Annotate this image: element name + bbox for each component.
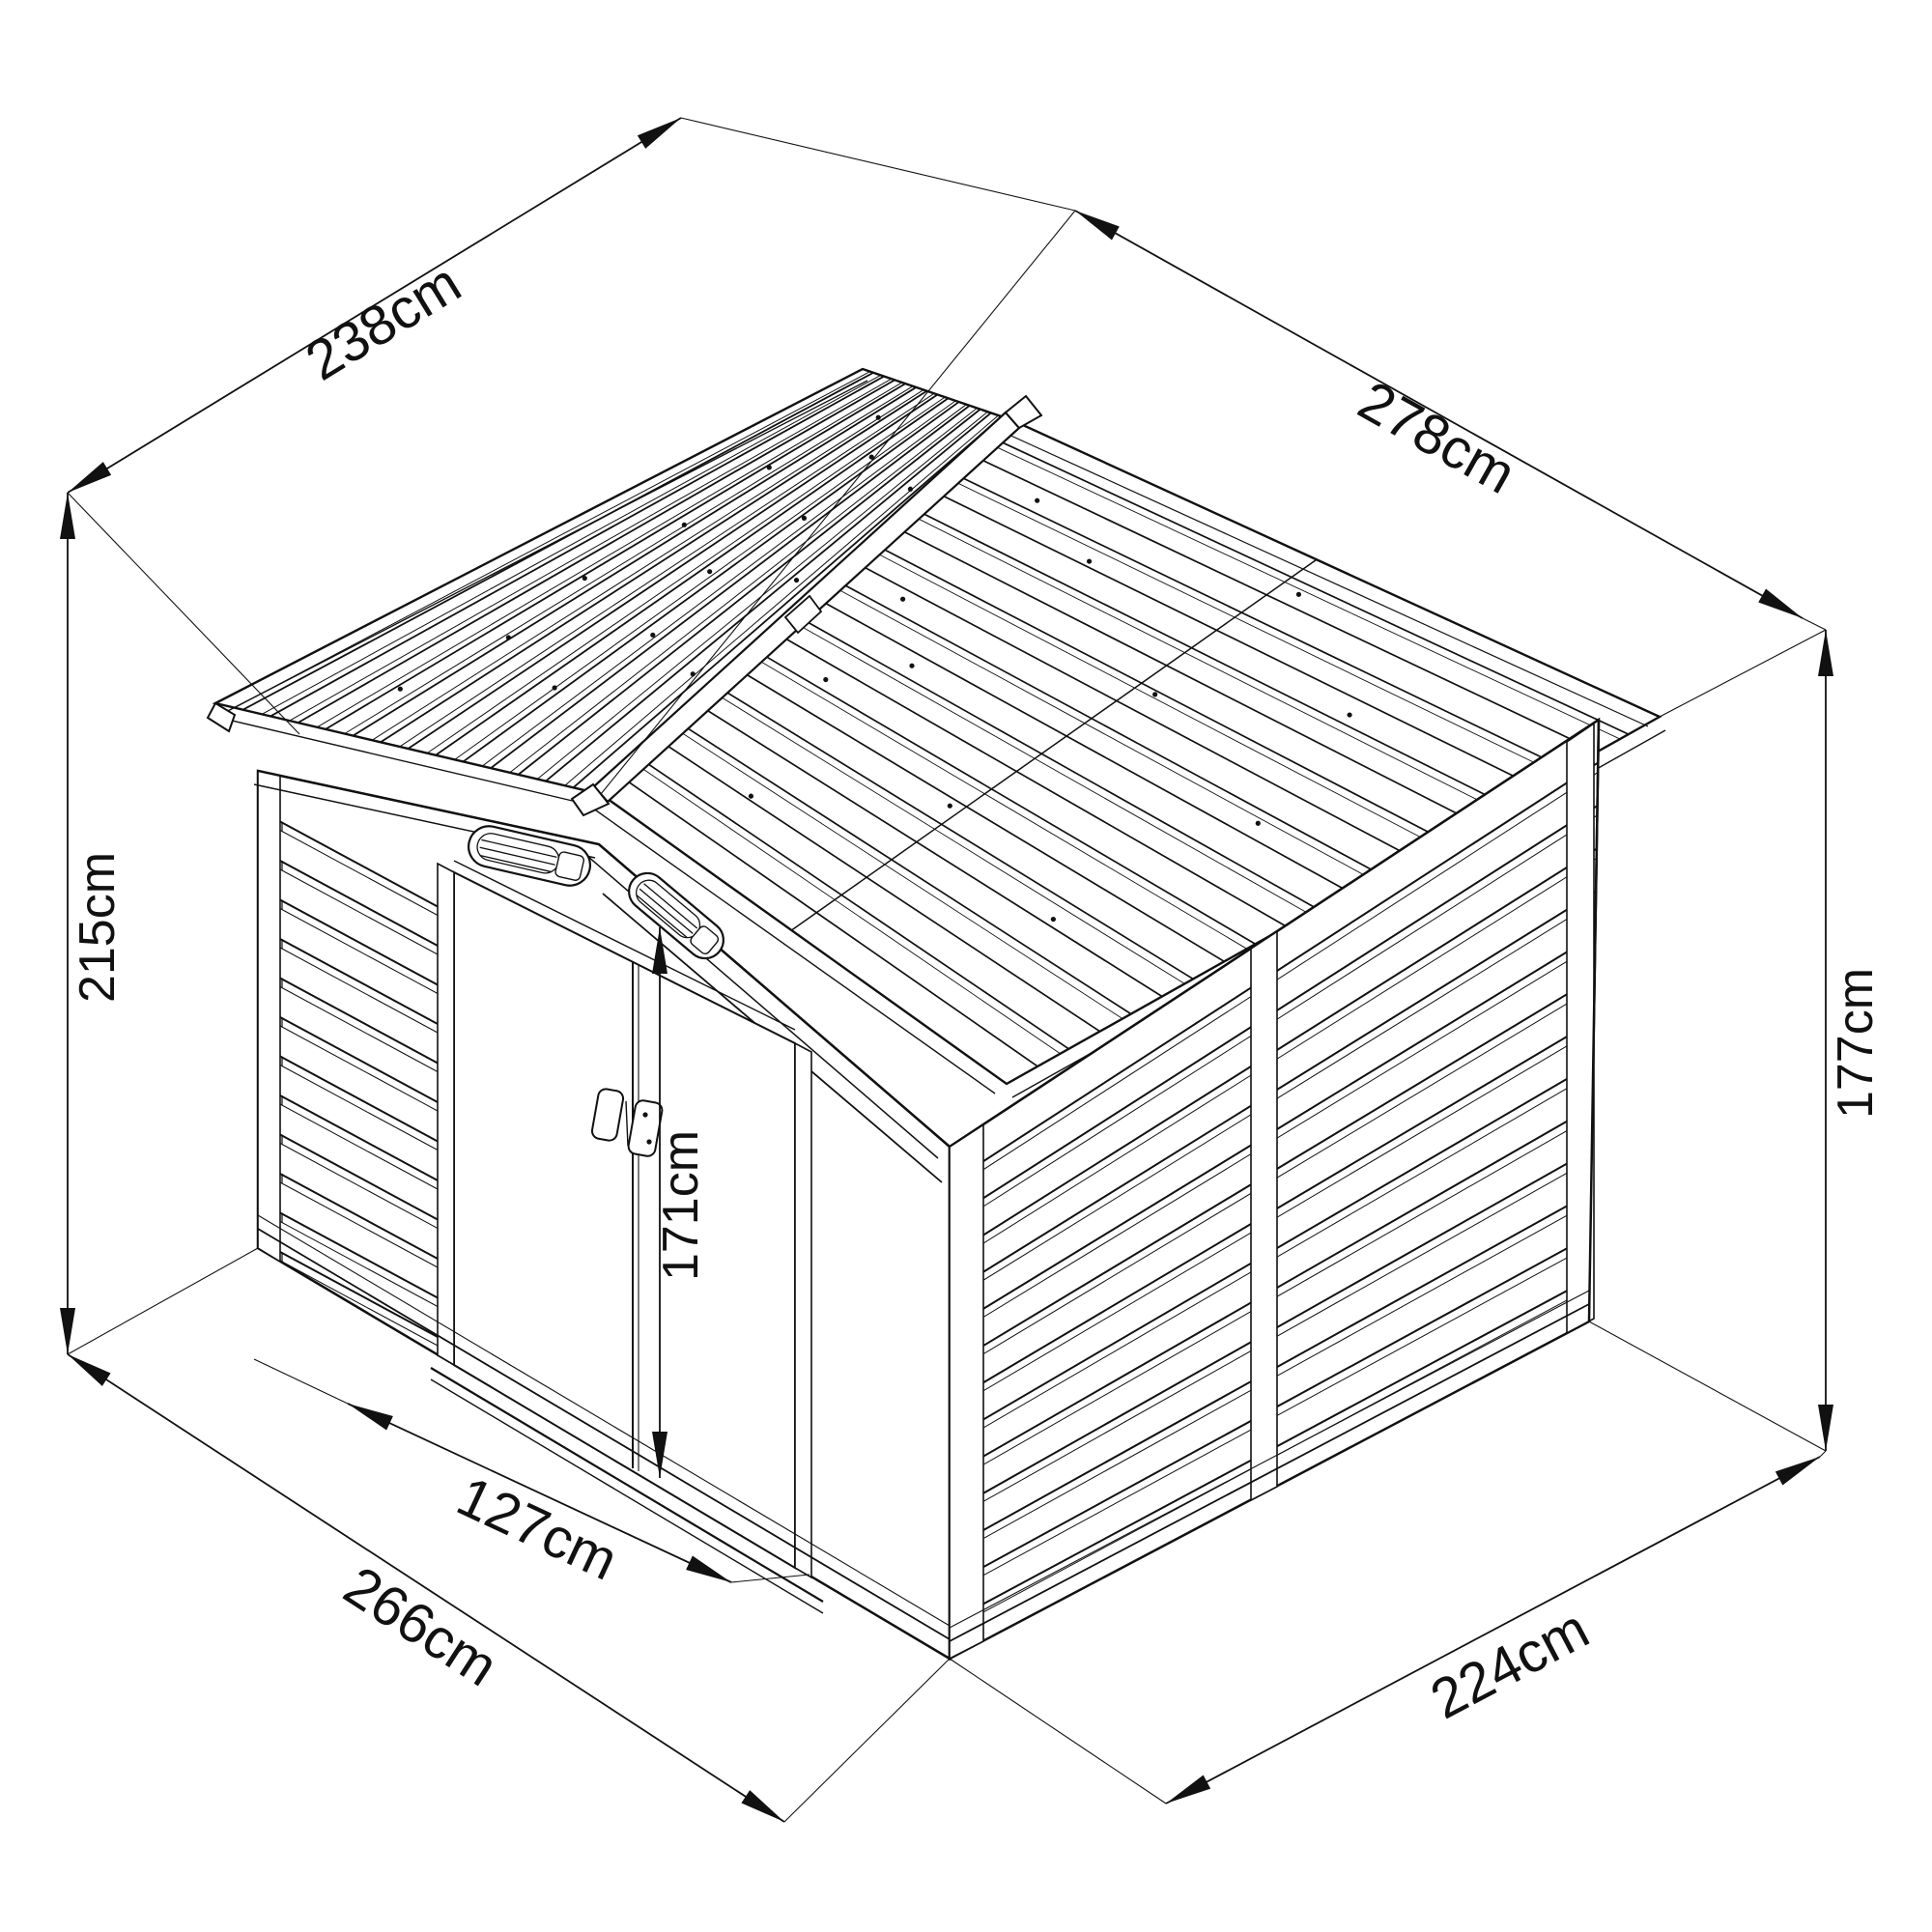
roof-screw-dot bbox=[802, 516, 807, 521]
extension-line bbox=[68, 1248, 258, 1354]
extension-line bbox=[681, 118, 1075, 211]
dim-base-depth-arrowhead bbox=[741, 1790, 784, 1822]
dim-roof-depth-arrowhead bbox=[638, 118, 681, 149]
dim-base-width-arrowhead bbox=[1166, 1775, 1210, 1804]
dim-wall-height-arrowhead bbox=[1818, 630, 1833, 676]
dim-base-width-line bbox=[1166, 1457, 1820, 1804]
side-middle-trim bbox=[1251, 931, 1277, 1500]
shed-dimension-diagram: 238cm 278cm 215cm 177cm 171cm 127cm 266c… bbox=[0, 0, 1932, 1932]
door-right-frame-trim bbox=[795, 1043, 811, 1577]
dim-wall-height-label: 177cm bbox=[1828, 968, 1884, 1119]
roof-screw-dot bbox=[876, 415, 881, 420]
front-left-corner-trim bbox=[258, 771, 280, 1262]
extension-line bbox=[784, 1659, 950, 1822]
dim-door-opening-width-label: 127cm bbox=[448, 1464, 627, 1592]
roof-screw-dot bbox=[691, 671, 696, 676]
roof-screw-dot bbox=[948, 804, 952, 809]
extension-line bbox=[950, 1659, 1166, 1804]
dim-wall-height-arrowhead bbox=[1818, 1405, 1833, 1451]
dim-roof-depth-label: 238cm bbox=[296, 251, 471, 392]
technical-drawing-canvas: 238cm 278cm 215cm 177cm 171cm 127cm 266c… bbox=[0, 0, 1932, 1932]
dim-total-height-arrowhead bbox=[60, 1308, 75, 1354]
extension-line bbox=[1803, 618, 1826, 630]
dim-total-height-arrowhead bbox=[60, 493, 75, 539]
roof-screw-dot bbox=[900, 597, 905, 602]
dim-roof-width-arrowhead bbox=[1758, 589, 1803, 618]
dim-base-width-label: 224cm bbox=[1421, 1597, 1599, 1731]
side-front-corner-trim bbox=[950, 1124, 983, 1659]
roof-screw-dot bbox=[707, 569, 712, 574]
dim-door-opening-width-arrowhead bbox=[686, 1555, 731, 1582]
door-left-frame-trim bbox=[438, 864, 454, 1365]
dim-roof-depth-arrowhead bbox=[68, 462, 111, 493]
dim-roof-width-arrowhead bbox=[1075, 211, 1120, 240]
dim-total-height-label: 215cm bbox=[70, 852, 126, 1003]
roof-screw-dot bbox=[908, 487, 913, 492]
dim-roof-width-label: 278cm bbox=[1349, 369, 1526, 506]
roof-screw-dot bbox=[398, 687, 403, 692]
dim-base-depth-label: 266cm bbox=[333, 1554, 508, 1698]
roof-screw-dot bbox=[582, 576, 587, 581]
roof-screw-dot bbox=[1035, 498, 1039, 503]
roof-screw-dot bbox=[909, 664, 914, 668]
extension-line bbox=[1660, 630, 1826, 717]
roof-screw-dot bbox=[553, 685, 557, 690]
dim-base-width-arrowhead bbox=[1776, 1457, 1820, 1486]
roof-screw-dot bbox=[794, 578, 799, 582]
extension-line bbox=[1589, 1321, 1826, 1451]
roof-screw-dot bbox=[767, 465, 772, 469]
roof-screw-dot bbox=[650, 633, 655, 638]
roof-screw-dot bbox=[1152, 692, 1157, 696]
roof-screw-dot bbox=[682, 523, 687, 527]
extension-line bbox=[1820, 1451, 1826, 1457]
roof-screw-dot bbox=[1296, 592, 1301, 597]
roof-screw-dot bbox=[749, 794, 753, 799]
dim-door-opening-width-arrowhead bbox=[348, 1404, 393, 1431]
dim-door-height-label: 171cm bbox=[653, 1130, 709, 1281]
roof-screw-dot bbox=[1051, 917, 1056, 922]
roof-screw-dot bbox=[1347, 712, 1351, 717]
dim-base-depth-arrowhead bbox=[68, 1354, 111, 1386]
roof-screw-dot bbox=[506, 635, 511, 639]
extension-line bbox=[254, 1359, 348, 1404]
roof-screw-dot bbox=[823, 677, 828, 682]
roof-screw-dot bbox=[1256, 821, 1261, 826]
extension-line bbox=[68, 493, 299, 734]
roof-screw-dot bbox=[1087, 558, 1092, 563]
